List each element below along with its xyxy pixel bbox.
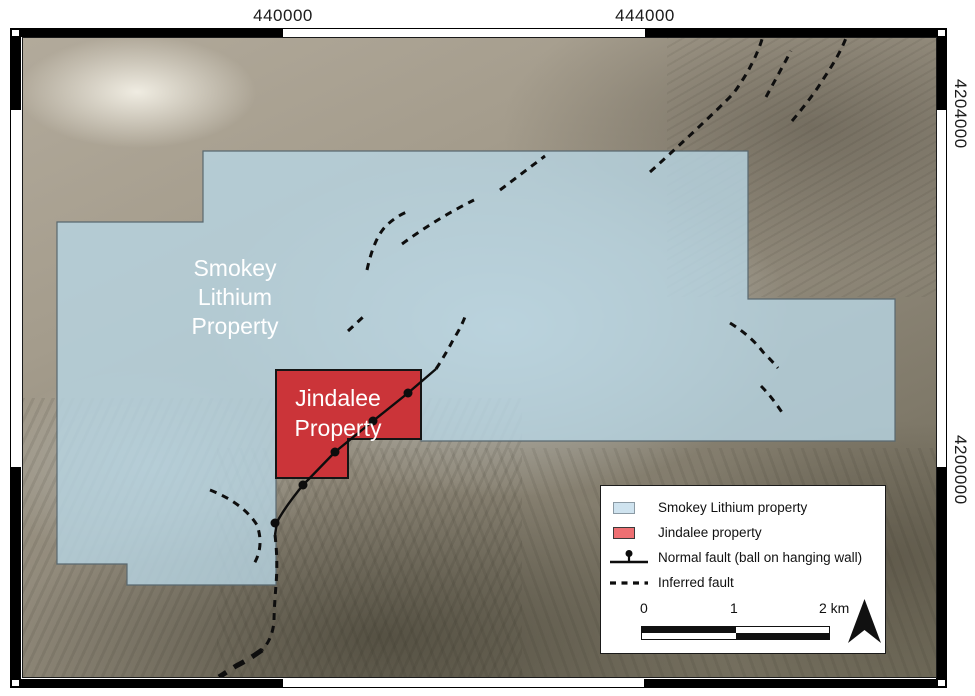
smokey-property-label-line1: Smokey bbox=[193, 255, 277, 281]
inferred-fault-line bbox=[766, 51, 791, 97]
fault-ball bbox=[404, 389, 413, 398]
fault-ball bbox=[331, 448, 340, 457]
legend-swatch-smokey bbox=[613, 502, 635, 514]
legend-item-smokey: Smokey Lithium property bbox=[601, 498, 885, 518]
frame-corner bbox=[11, 29, 20, 37]
scale-bar-label-2km: 2 km bbox=[819, 600, 849, 616]
jindalee-property-label-line2: Property bbox=[295, 415, 382, 441]
x-axis-label-440000: 440000 bbox=[223, 6, 343, 26]
frame-corner bbox=[937, 29, 946, 37]
normal-fault-icon bbox=[607, 548, 651, 568]
x-axis-label-444000: 444000 bbox=[585, 6, 705, 26]
scale-bar-segment bbox=[642, 633, 736, 639]
legend-item-label: Jindalee property bbox=[658, 525, 762, 540]
legend-item-label: Smokey Lithium property bbox=[658, 500, 807, 515]
smokey-property-label-line3: Property bbox=[192, 313, 279, 339]
fault-ball bbox=[299, 481, 308, 490]
scale-bar-segment bbox=[736, 633, 830, 639]
legend-item-inferred-fault: Inferred fault bbox=[601, 573, 885, 593]
scale-bar-label-1: 1 bbox=[730, 600, 738, 616]
inferred-fault-line-thick bbox=[219, 650, 262, 677]
scale-bar bbox=[641, 626, 830, 640]
y-axis-label-4200000: 4200000 bbox=[948, 422, 972, 518]
legend-item-label: Inferred fault bbox=[658, 575, 734, 590]
legend-box: Smokey Lithium property Jindalee propert… bbox=[600, 485, 886, 654]
y-axis-label-4204000: 4204000 bbox=[948, 66, 972, 162]
legend-item-label: Normal fault (ball on hanging wall) bbox=[658, 550, 862, 565]
inferred-fault-icon bbox=[607, 573, 651, 593]
map-canvas: Smokey Lithium Property Jindalee Propert… bbox=[22, 37, 937, 678]
inferred-fault-line bbox=[792, 38, 846, 121]
north-arrow-icon bbox=[846, 598, 883, 644]
jindalee-property-label-line1: Jindalee bbox=[295, 385, 381, 411]
frame-corner bbox=[937, 679, 946, 687]
scale-bar-label-0: 0 bbox=[640, 600, 648, 616]
smokey-property-label-line2: Lithium bbox=[198, 284, 272, 310]
legend-item-normal-fault: Normal fault (ball on hanging wall) bbox=[601, 548, 885, 568]
legend-item-jindalee: Jindalee property bbox=[601, 523, 885, 543]
legend-swatch-jindalee bbox=[613, 527, 635, 539]
frame-corner bbox=[11, 679, 20, 687]
map-figure: 440000 444000 4204000 4200000 bbox=[0, 0, 975, 696]
fault-ball bbox=[271, 519, 280, 528]
